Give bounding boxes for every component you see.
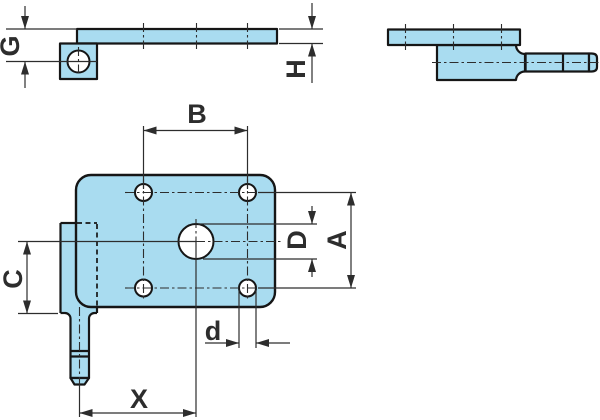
arrowhead [308, 16, 316, 29]
technical-drawing-canvas: G H [0, 0, 600, 420]
dim-label-C: C [0, 269, 28, 289]
dim-label-X: X [130, 384, 148, 414]
arrowhead [347, 193, 355, 206]
arrowhead [21, 62, 29, 75]
dim-label-H: H [281, 59, 311, 79]
top-view: G H [0, 3, 323, 88]
arrowhead [226, 339, 239, 347]
dim-label-d: d [205, 316, 222, 346]
arrowhead [23, 301, 31, 314]
arrowhead [80, 409, 93, 417]
hinge-plate-drawing: G H [0, 0, 600, 420]
arrowhead [308, 44, 316, 57]
arrowhead [183, 409, 196, 417]
arrowhead [308, 259, 316, 272]
dim-label-A: A [322, 230, 352, 250]
dim-label-D: D [282, 230, 312, 250]
arrowhead [256, 339, 269, 347]
dimension-H: H [279, 3, 323, 83]
dim-label-B: B [187, 99, 207, 129]
arrowhead [21, 16, 29, 29]
dim-label-G: G [0, 35, 25, 56]
side-view [388, 24, 600, 80]
arrowhead [235, 127, 248, 135]
arrowhead [308, 211, 316, 224]
front-view: B A D C [0, 99, 356, 417]
arrowhead [23, 242, 31, 255]
arrowhead [144, 127, 157, 135]
arrowhead [347, 275, 355, 288]
